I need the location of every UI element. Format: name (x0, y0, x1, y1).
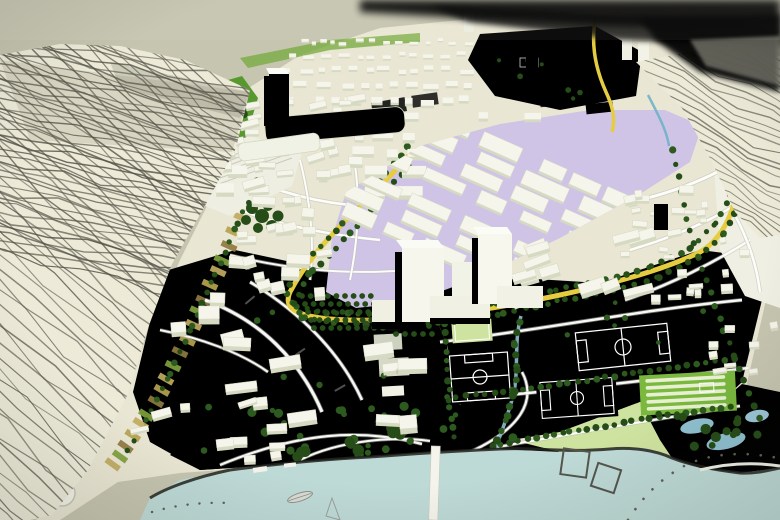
vignette (0, 0, 780, 520)
top-light (0, 0, 780, 40)
photo-of-city-model: Photograph of an architectural urban-pla… (0, 0, 780, 520)
photo-overlay (0, 0, 780, 520)
model-photo-canvas: Photograph of an architectural urban-pla… (0, 0, 780, 520)
